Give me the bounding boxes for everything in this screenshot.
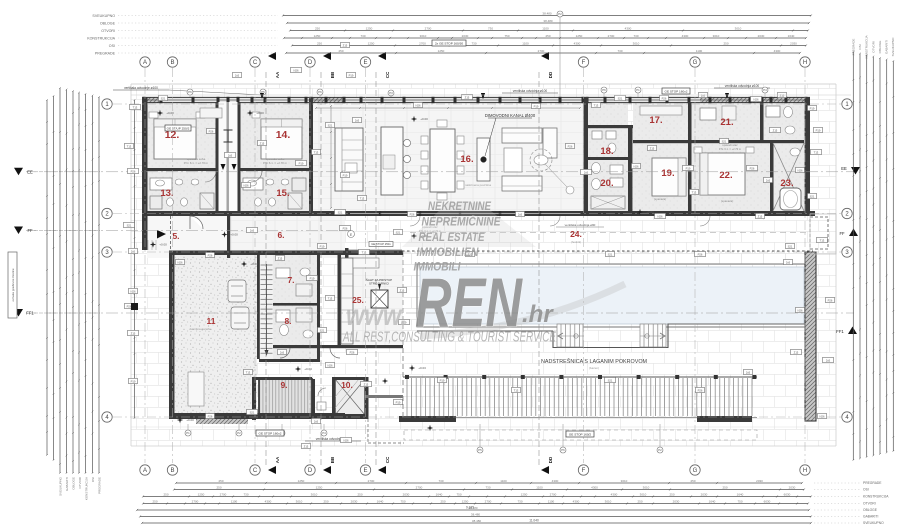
svg-text:250: 250: [669, 493, 674, 497]
svg-text:1100: 1100: [542, 27, 549, 31]
svg-text:G: G: [693, 468, 698, 474]
svg-text:S21: S21: [810, 194, 815, 198]
svg-text:OTVORI: OTVORI: [863, 502, 876, 506]
svg-text:P4: P4: [322, 431, 326, 435]
svg-text:2x5: 2x5: [826, 358, 831, 362]
svg-text:S21: S21: [328, 123, 333, 127]
svg-text:N26: N26: [244, 183, 249, 187]
svg-text:P.N. 6.1. = +2.70 m: P.N. 6.1. = +2.70 m: [719, 147, 741, 151]
svg-text:T13: T13: [314, 150, 319, 154]
svg-text:PREGRADE: PREGRADE: [98, 477, 102, 494]
svg-text:P1: P1: [186, 431, 190, 435]
svg-text:2030: 2030: [701, 493, 708, 497]
svg-text:AA: AA: [275, 456, 280, 463]
svg-text:4300: 4300: [574, 42, 581, 46]
svg-text:OBLOGE: OBLOGE: [863, 508, 878, 512]
svg-text:6030: 6030: [784, 493, 791, 497]
svg-text:Z15: Z15: [780, 93, 785, 97]
svg-text:P19: P19: [440, 378, 445, 382]
svg-text:250: 250: [690, 479, 695, 483]
svg-text:P26: P26: [698, 388, 703, 392]
svg-text:1640: 1640: [377, 500, 384, 504]
svg-text:2x5: 2x5: [280, 350, 285, 354]
svg-text:250: 250: [218, 479, 223, 483]
svg-text:S21: S21: [127, 223, 132, 227]
svg-text:P.N. 6.1. = +2.70 m: P.N. 6.1. = +2.70 m: [184, 161, 209, 165]
svg-text:250: 250: [338, 49, 343, 53]
svg-text:GE STOP 160/2: GE STOP 160/2: [569, 433, 592, 437]
svg-text:N26: N26: [658, 214, 663, 218]
svg-text:OBLOGE: OBLOGE: [100, 21, 116, 25]
svg-text:1250: 1250: [368, 42, 375, 46]
svg-text:2700: 2700: [608, 34, 615, 38]
svg-text:15.: 15.: [276, 188, 289, 199]
svg-text:Z15: Z15: [364, 382, 369, 386]
svg-text:(bazen): (bazen): [589, 366, 599, 370]
svg-text:natkrivena površina: natkrivena površina: [465, 183, 491, 187]
svg-text:4300: 4300: [625, 27, 632, 31]
svg-text:Z15: Z15: [650, 146, 655, 150]
svg-text:1100: 1100: [500, 479, 507, 483]
svg-text:KONSTRUKCIJA: KONSTRUKCIJA: [87, 36, 115, 40]
svg-text:14.: 14.: [276, 129, 291, 141]
svg-text:16.: 16.: [460, 154, 473, 165]
svg-text:H: H: [803, 60, 807, 66]
svg-text:S21: S21: [608, 378, 613, 382]
svg-text:250: 250: [357, 493, 362, 497]
svg-text:P26: P26: [828, 298, 833, 302]
svg-text:1640: 1640: [737, 493, 744, 497]
svg-text:N26: N26: [416, 103, 421, 107]
svg-text:dvorišna garaža: dvorišna garaža: [189, 327, 211, 331]
svg-text:38.480: 38.480: [543, 19, 553, 23]
svg-text:GE STOP 160x2: GE STOP 160x2: [665, 90, 688, 94]
svg-text:GABARITI: GABARITI: [863, 515, 878, 519]
svg-text:1640: 1640: [788, 34, 795, 38]
svg-text:C: C: [253, 468, 258, 474]
svg-text:T13: T13: [246, 370, 251, 374]
svg-text:Z15: Z15: [343, 43, 348, 47]
svg-text:24.: 24.: [570, 229, 582, 239]
svg-text:P6: P6: [602, 88, 606, 92]
svg-text:730: 730: [243, 493, 248, 497]
svg-text:OSI: OSI: [91, 477, 95, 482]
svg-text:OSI: OSI: [858, 44, 862, 49]
svg-text:ventilska odvodnja ø100: ventilska odvodnja ø100: [725, 84, 760, 88]
svg-text:6.: 6.: [277, 230, 284, 240]
svg-text:T13: T13: [814, 150, 819, 154]
svg-text:1250: 1250: [576, 34, 583, 38]
svg-text:23.: 23.: [780, 178, 793, 189]
svg-text:DD: DD: [548, 456, 553, 463]
svg-text:OBLOGE: OBLOGE: [878, 41, 882, 54]
svg-text:H: H: [803, 468, 807, 474]
svg-text:1250: 1250: [298, 479, 305, 483]
svg-text:8.: 8.: [284, 316, 291, 326]
svg-text:3010: 3010: [621, 479, 628, 483]
svg-text:B: B: [170, 468, 174, 474]
svg-text:DIMOVODNI KANAL Ø400: DIMOVODNI KANAL Ø400: [485, 113, 536, 118]
svg-text:750: 750: [504, 34, 509, 38]
svg-text:38.480: 38.480: [471, 513, 481, 517]
svg-text:4300: 4300: [611, 493, 618, 497]
svg-text:ventilska odvodnja ø100: ventilska odvodnja ø100: [513, 89, 548, 93]
svg-text:2x5: 2x5: [355, 118, 360, 122]
svg-text:2x GE STOP 160/30: 2x GE STOP 160/30: [435, 42, 463, 46]
svg-text:P26: P26: [410, 212, 415, 216]
svg-text:4300: 4300: [591, 486, 598, 490]
svg-text:S21: S21: [338, 210, 343, 214]
svg-text:OBLOGE: OBLOGE: [72, 477, 76, 490]
svg-text:P19: P19: [131, 379, 136, 383]
svg-text:P19: P19: [320, 244, 325, 248]
svg-text:P26: P26: [209, 129, 214, 133]
svg-text:T13: T13: [594, 103, 599, 107]
svg-text:2x5: 2x5: [746, 370, 751, 374]
svg-text:P26: P26: [350, 350, 355, 354]
svg-text:T13: T13: [692, 190, 697, 194]
svg-text:P26: P26: [662, 96, 667, 100]
svg-text:FF: FF: [27, 228, 33, 233]
svg-text:OSI: OSI: [863, 488, 869, 492]
svg-text:20.: 20.: [600, 178, 613, 189]
svg-text:+0.00: +0.00: [230, 233, 238, 237]
svg-text:T13: T13: [360, 196, 365, 200]
svg-text:2x5: 2x5: [584, 170, 589, 174]
svg-text:SVEUKUPNO: SVEUKUPNO: [891, 37, 895, 57]
svg-text:3010: 3010: [633, 42, 640, 46]
svg-text:P3: P3: [389, 91, 393, 95]
svg-text:750: 750: [456, 493, 461, 497]
svg-text:P26: P26: [208, 253, 213, 257]
svg-text:EE: EE: [841, 166, 847, 171]
svg-text:730: 730: [485, 486, 490, 490]
svg-text:Z15: Z15: [758, 214, 763, 218]
svg-text:1250: 1250: [316, 486, 323, 490]
svg-text:730: 730: [471, 42, 476, 46]
svg-text:730: 730: [438, 479, 443, 483]
svg-text:REAL ESTATE: REAL ESTATE: [419, 232, 485, 244]
svg-text:P6: P6: [188, 90, 192, 94]
svg-text:2x5: 2x5: [235, 73, 240, 77]
svg-text:2x5: 2x5: [131, 249, 136, 253]
svg-text:N26: N26: [131, 289, 136, 293]
svg-text:730: 730: [360, 34, 365, 38]
svg-text:2700: 2700: [192, 500, 199, 504]
svg-text:11.040: 11.040: [529, 519, 539, 523]
svg-text:ventilska odvodnja ø90: ventilska odvodnja ø90: [565, 223, 596, 227]
svg-text:P19: P19: [810, 106, 815, 110]
svg-text:1250: 1250: [438, 49, 445, 53]
svg-text:1640: 1640: [709, 500, 716, 504]
svg-text:NEKRETNINE: NEKRETNINE: [428, 201, 491, 213]
svg-text:T13: T13: [362, 250, 367, 254]
svg-text:Z15: Z15: [465, 95, 470, 99]
svg-text:Z15: Z15: [278, 256, 283, 260]
svg-text:2030: 2030: [462, 34, 469, 38]
svg-text:GABARITI: GABARITI: [65, 477, 69, 491]
svg-text:vertikala odvodnje ø100: vertikala odvodnje ø100: [124, 86, 158, 90]
svg-text:1250: 1250: [462, 500, 469, 504]
svg-text:9.: 9.: [280, 380, 287, 390]
svg-text:G: G: [693, 60, 698, 66]
svg-text:P5: P5: [478, 448, 482, 452]
svg-text:19.: 19.: [661, 168, 674, 179]
svg-text:2030: 2030: [789, 486, 796, 490]
svg-text:2700: 2700: [220, 493, 227, 497]
svg-text:1250: 1250: [314, 34, 321, 38]
svg-text:CC: CC: [385, 71, 390, 78]
svg-text:Z15: Z15: [794, 350, 799, 354]
svg-text:4300: 4300: [573, 500, 580, 504]
svg-text:1250: 1250: [198, 493, 205, 497]
svg-text:GABARITI: GABARITI: [885, 40, 889, 54]
svg-text:1100: 1100: [536, 486, 543, 490]
svg-text:+0.00: +0.00: [159, 243, 167, 247]
svg-text:250: 250: [152, 500, 157, 504]
svg-text:2x5: 2x5: [766, 178, 771, 182]
svg-text:2700: 2700: [419, 42, 426, 46]
svg-text:BB: BB: [330, 456, 335, 463]
svg-text:A: A: [143, 468, 147, 474]
svg-text:T13: T13: [820, 238, 825, 242]
svg-text:P26: P26: [131, 169, 136, 173]
svg-text:EE: EE: [27, 169, 33, 174]
svg-text:D: D: [308, 468, 313, 474]
svg-text:SVEUKUPNO: SVEUKUPNO: [863, 521, 884, 525]
svg-text:250: 250: [317, 42, 322, 46]
svg-text:5.: 5.: [172, 231, 179, 241]
svg-text:P19: P19: [816, 128, 821, 132]
svg-text:7.: 7.: [287, 275, 294, 285]
svg-text:P19: P19: [534, 104, 539, 108]
svg-text:Z15: Z15: [260, 141, 265, 145]
svg-text:2700: 2700: [416, 486, 423, 490]
svg-text:3010: 3010: [640, 493, 647, 497]
svg-text:1100: 1100: [548, 500, 555, 504]
svg-text:2700: 2700: [538, 49, 545, 53]
svg-text:T13: T13: [328, 296, 333, 300]
svg-text:2700: 2700: [485, 500, 492, 504]
svg-text:250: 250: [216, 486, 221, 490]
svg-text:DD: DD: [548, 71, 553, 78]
svg-text:P19: P19: [310, 276, 315, 280]
svg-text:(spavaća): (spavaća): [654, 197, 666, 201]
svg-text:GE STOP 160x2: GE STOP 160x2: [259, 432, 282, 436]
svg-text:2030: 2030: [758, 34, 765, 38]
svg-text:OTVORI: OTVORI: [101, 29, 115, 33]
svg-text:N26: N26: [798, 308, 803, 312]
svg-text:2700: 2700: [368, 479, 375, 483]
svg-text:P2: P2: [237, 431, 241, 435]
svg-text:2030: 2030: [673, 500, 680, 504]
svg-text:D: D: [308, 60, 313, 66]
svg-text:9.165: 9.165: [466, 506, 474, 510]
svg-text:250: 250: [163, 493, 168, 497]
svg-text:N26: N26: [344, 438, 349, 442]
svg-text:STROJARNICI: STROJARNICI: [369, 282, 389, 286]
svg-text:250: 250: [723, 42, 728, 46]
svg-text:1250: 1250: [366, 27, 373, 31]
svg-text:S21: S21: [608, 252, 613, 256]
svg-text:P26: P26: [698, 252, 703, 256]
svg-text:+0.03: +0.03: [418, 366, 426, 370]
svg-text:KONSTRUKCIJA: KONSTRUKCIJA: [863, 495, 889, 499]
svg-text:OTVORI: OTVORI: [871, 41, 875, 53]
svg-text:KONSTRUKCIJA: KONSTRUKCIJA: [865, 35, 869, 58]
svg-text:N26: N26: [820, 414, 825, 418]
svg-text:CC: CC: [385, 456, 390, 463]
svg-text:P1: P1: [636, 88, 640, 92]
svg-text:2x5: 2x5: [314, 419, 319, 423]
svg-text:4300: 4300: [774, 49, 781, 53]
svg-text:S21: S21: [161, 96, 166, 100]
svg-text:P.N. 6.1. = +2.70 m: P.N. 6.1. = +2.70 m: [263, 161, 288, 165]
svg-text:2x5: 2x5: [250, 228, 255, 232]
svg-text:1100: 1100: [522, 42, 529, 46]
svg-text:F: F: [582, 468, 586, 474]
svg-text:250: 250: [545, 34, 550, 38]
svg-text:P19: P19: [343, 173, 348, 177]
svg-text:2x5: 2x5: [228, 153, 233, 157]
svg-text:GE 5T/UP 250x: GE 5T/UP 250x: [371, 242, 391, 246]
svg-text:NADSTREŠNICA S LAGANIM POKROVO: NADSTREŠNICA S LAGANIM POKROVOM: [541, 358, 648, 365]
svg-text:GE 5T/UP 250/2: GE 5T/UP 250/2: [167, 127, 190, 131]
svg-text:4300: 4300: [682, 34, 689, 38]
svg-text:P26: P26: [208, 414, 213, 418]
svg-text:250: 250: [323, 500, 328, 504]
svg-text:+0.03: +0.03: [304, 367, 312, 371]
svg-text:S21: S21: [722, 139, 727, 143]
svg-text:Z15: Z15: [773, 128, 778, 132]
svg-text:6030: 6030: [764, 500, 771, 504]
svg-text:+0.03: +0.03: [250, 262, 258, 266]
svg-text:2x5: 2x5: [786, 260, 791, 264]
svg-text:FF1: FF1: [836, 329, 844, 334]
svg-text:2x5: 2x5: [701, 93, 706, 97]
svg-text:3010: 3010: [296, 500, 303, 504]
svg-text:SVEUKUPNO: SVEUKUPNO: [92, 14, 115, 18]
svg-text:P4: P4: [763, 88, 767, 92]
svg-text:IMMOBILIEN: IMMOBILIEN: [417, 247, 480, 259]
svg-text:+0.00: +0.00: [186, 418, 194, 422]
svg-text:T13: T13: [133, 105, 138, 109]
svg-text:P2: P2: [658, 448, 662, 452]
svg-text:730: 730: [517, 500, 522, 504]
svg-text:S21: S21: [250, 410, 255, 414]
svg-text:730: 730: [633, 34, 638, 38]
svg-text:KONSTRUKCIJA: KONSTRUKCIJA: [85, 477, 89, 500]
svg-text:S21: S21: [618, 96, 623, 100]
svg-text:250: 250: [637, 500, 642, 504]
svg-text:P19: P19: [396, 400, 401, 404]
svg-text:10.: 10.: [341, 380, 353, 390]
svg-text:3010: 3010: [420, 34, 427, 38]
svg-text:250: 250: [315, 27, 320, 31]
svg-text:750: 750: [400, 500, 405, 504]
svg-text:F: F: [582, 60, 586, 66]
svg-text:4300: 4300: [552, 479, 559, 483]
svg-text:S21: S21: [788, 244, 793, 248]
svg-text:+0.00: +0.00: [420, 117, 428, 121]
svg-text:FF: FF: [839, 231, 845, 236]
svg-text:18.: 18.: [600, 146, 613, 157]
svg-text:P6: P6: [561, 448, 565, 452]
svg-text:OSI: OSI: [109, 44, 115, 48]
svg-text:PREGRADE: PREGRADE: [852, 39, 856, 56]
svg-text:ALL REST,CONSULTING & TOURIST: ALL REST,CONSULTING & TOURIST SERVICE: [342, 329, 556, 346]
svg-text:2x5: 2x5: [518, 212, 523, 216]
svg-text:P6: P6: [318, 90, 322, 94]
svg-text:N26: N26: [634, 164, 639, 168]
svg-text:730: 730: [617, 49, 622, 53]
svg-text:T13: T13: [514, 388, 519, 392]
svg-text:+0.00: +0.00: [256, 111, 264, 115]
svg-text:Z15: Z15: [400, 288, 405, 292]
svg-text:38.480: 38.480: [472, 519, 482, 523]
svg-text:S21: S21: [396, 230, 401, 234]
svg-text:730: 730: [488, 27, 493, 31]
svg-text:3010: 3010: [713, 34, 720, 38]
svg-text:21.: 21.: [720, 117, 733, 128]
svg-text:BB: BB: [330, 71, 335, 78]
svg-text:E: E: [363, 60, 367, 66]
svg-text:2700: 2700: [425, 27, 432, 31]
svg-text:PREGRADE: PREGRADE: [863, 481, 882, 485]
svg-text:SVEUKUPNO: SVEUKUPNO: [59, 476, 63, 496]
svg-text:1100: 1100: [231, 500, 238, 504]
svg-text:PREGRADE: PREGRADE: [95, 51, 116, 55]
svg-text:38.480: 38.480: [542, 12, 552, 16]
svg-text:1100: 1100: [696, 49, 703, 53]
svg-text:1250: 1250: [521, 493, 528, 497]
svg-text:+0.00: +0.00: [166, 111, 174, 115]
svg-text:E: E: [363, 468, 367, 474]
svg-text:11: 11: [207, 316, 216, 326]
svg-text:N26: N26: [294, 68, 299, 72]
svg-text:B: B: [170, 60, 174, 66]
svg-text:2700: 2700: [550, 493, 557, 497]
svg-text:S21: S21: [320, 328, 325, 332]
svg-text:(spavaća): (spavaća): [721, 199, 733, 203]
svg-text:P26: P26: [343, 226, 348, 230]
svg-text:P19: P19: [349, 73, 354, 77]
svg-text:Z15: Z15: [304, 444, 309, 448]
svg-text:2030: 2030: [403, 493, 410, 497]
svg-text:P19: P19: [299, 161, 304, 165]
svg-text:N26: N26: [754, 97, 759, 101]
svg-text:N26: N26: [798, 168, 803, 172]
svg-text:www.: www.: [346, 299, 407, 332]
svg-text:4300: 4300: [265, 500, 272, 504]
svg-text:3010: 3010: [643, 486, 650, 490]
svg-text:N26: N26: [178, 260, 183, 264]
svg-text:NEPREMIČNINE: NEPREMIČNINE: [422, 216, 501, 229]
svg-text:2030: 2030: [756, 479, 763, 483]
svg-text:P2: P2: [558, 12, 562, 16]
svg-text:750: 750: [737, 500, 742, 504]
svg-text:A: A: [143, 60, 147, 66]
svg-text:250: 250: [440, 500, 445, 504]
svg-text:17.: 17.: [649, 115, 662, 126]
svg-text:3010: 3010: [311, 493, 318, 497]
svg-text:3010: 3010: [605, 500, 612, 504]
svg-text:250: 250: [722, 486, 727, 490]
svg-text:(hodnik): (hodnik): [571, 240, 581, 244]
svg-text:C: C: [253, 60, 258, 66]
svg-text:.hr: .hr: [522, 301, 554, 328]
svg-text:AA: AA: [275, 71, 280, 78]
